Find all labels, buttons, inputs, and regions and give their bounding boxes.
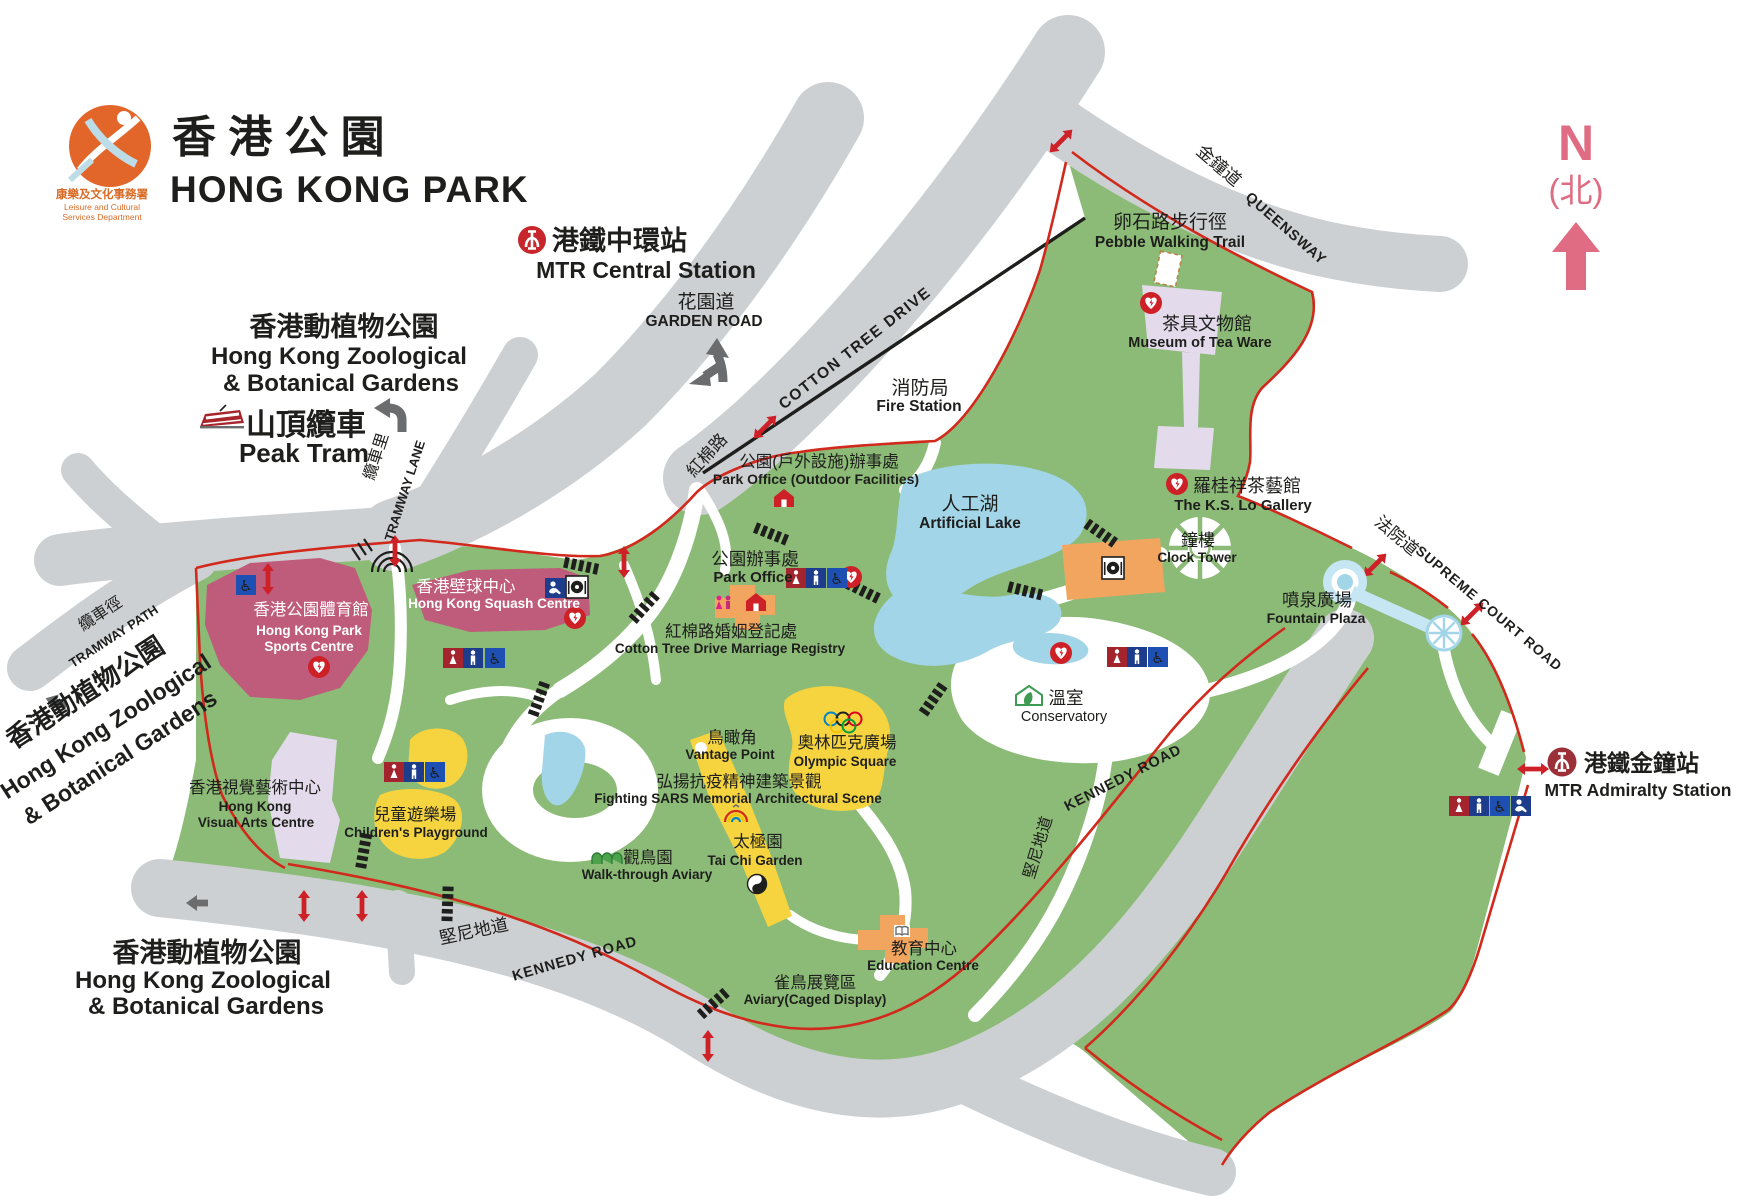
accessible-icon-glyph: ♿ <box>488 651 501 668</box>
aed-icon <box>1050 642 1072 664</box>
clock-tower-en: Clock Tower <box>1157 550 1237 565</box>
garden-road-zh: 花園道 <box>677 291 734 313</box>
visual-arts-en2: Visual Arts Centre <box>198 815 315 830</box>
tea-ware-zh: 茶具文物館 <box>1162 314 1252 334</box>
pebble-trail-zh: 卵石路步行徑 <box>1113 211 1227 233</box>
baby-care-icon <box>1511 796 1531 816</box>
artificial-lake-en: Artificial Lake <box>919 515 1021 532</box>
accessible-icon-glyph: ♿ <box>830 571 843 588</box>
sports-centre-zh: 香港公園體育館 <box>253 600 369 619</box>
mtr-admiralty-en: MTR Admiralty Station <box>1545 780 1732 800</box>
logo-dept-en1: Leisure and Cultural <box>64 202 140 212</box>
park-office-outdoor-en: Park Office (Outdoor Facilities) <box>713 471 919 487</box>
visual-arts-centre-building <box>268 732 340 863</box>
accessible-icon-glyph: ♿ <box>1493 799 1506 816</box>
marriage-registry-en: Cotton Tree Drive Marriage Registry <box>615 641 846 656</box>
fountain-wheel-icon <box>1427 616 1461 650</box>
aviary-caged-zh: 雀鳥展覽區 <box>774 973 857 992</box>
marriage-registry-zh: 紅棉路婚姻登記處 <box>665 622 797 641</box>
conservatory-zh: 溫室 <box>1049 688 1084 708</box>
education-centre-zh: 教育中心 <box>891 939 957 958</box>
yin-yang-icon <box>748 875 767 894</box>
sars-memorial-en: Fighting SARS Memorial Architectural Sce… <box>594 791 882 806</box>
mtr-central-zh: 港鐵中環站 <box>552 226 687 256</box>
accessible-icon-glyph: ♿ <box>428 765 441 782</box>
clock-tower-zh: 鐘樓 <box>1181 531 1215 550</box>
park-office-zh: 公園辦事處 <box>711 549 799 569</box>
baby-care-icon <box>545 578 565 598</box>
mtr-admiralty-icon <box>1548 748 1577 777</box>
zoo-bottom-zh: 香港動植物公園 <box>113 937 302 968</box>
visual-arts-en1: Hong Kong <box>219 799 292 814</box>
vantage-point-zh: 鳥瞰角 <box>707 728 757 747</box>
tai-chi-zh: 太極園 <box>733 832 783 851</box>
sars-memorial-zh: 弘揚抗疫精神建築景觀 <box>657 772 822 791</box>
zoo-top-en1: Hong Kong Zoological <box>211 343 467 370</box>
logo-dept-en2: Services Department <box>62 212 142 222</box>
compass-n: N <box>1558 115 1594 171</box>
playground-en: Children's Playground <box>344 825 487 840</box>
ks-lo-en: The K.S. Lo Gallery <box>1174 497 1312 514</box>
vantage-point-en: Vantage Point <box>685 747 775 762</box>
aed-icon <box>308 656 330 678</box>
park-office-outdoor-zh: 公園(戶外設施)辦事處 <box>739 452 899 471</box>
fire-station-en: Fire Station <box>876 398 961 415</box>
logo-dept-zh: 康樂及文化事務署 <box>56 187 148 201</box>
toilets-icon <box>443 648 483 668</box>
squash-centre-en: Hong Kong Squash Centre <box>408 596 580 611</box>
restaurant-icon <box>1102 557 1124 579</box>
toilets-icon <box>1449 796 1489 816</box>
compass-north-zh: (北) <box>1549 172 1604 209</box>
zoo-bottom-en2: & Botanical Gardens <box>88 993 324 1020</box>
zoo-top-en2: & Botanical Gardens <box>223 370 459 397</box>
toilets-icon <box>384 762 424 782</box>
artificial-lake-zh: 人工湖 <box>941 493 998 515</box>
park-office-en: Park Office <box>713 569 792 586</box>
pebble-trail-en: Pebble Walking Trail <box>1095 234 1245 251</box>
mtr-central-en: MTR Central Station <box>536 257 756 283</box>
accessible-icon-glyph: ♿ <box>1151 650 1164 667</box>
squash-centre-zh: 香港壁球中心 <box>417 577 516 596</box>
olympic-square-en: Olympic Square <box>794 754 897 769</box>
mtr-central-icon <box>518 226 546 254</box>
lcsd-logo <box>69 105 151 187</box>
restaurant-icon <box>566 576 588 598</box>
visual-arts-zh: 香港視覺藝術中心 <box>189 778 321 797</box>
ks-lo-zh: 羅桂祥茶藝館 <box>1193 476 1301 496</box>
aed-icon <box>1140 292 1162 314</box>
zoo-top-zh: 香港動植物公園 <box>250 311 439 342</box>
accessible-icon-glyph: ♿ <box>239 578 252 595</box>
tea-ware-en: Museum of Tea Ware <box>1128 335 1271 351</box>
sports-centre-en1: Hong Kong Park <box>256 623 362 638</box>
hong-kong-park-map: ♿ ♿ ♿ ♿ ♿ ♿ 康樂及文化事務署 Leisure and Cultura… <box>0 0 1744 1202</box>
playground-zh: 兒童遊樂場 <box>374 805 457 824</box>
education-centre-en: Education Centre <box>867 958 979 973</box>
mtr-admiralty-zh: 港鐵金鐘站 <box>1584 750 1699 776</box>
aviary-walk-en: Walk-through Aviary <box>582 867 713 882</box>
fountain-plaza-en: Fountain Plaza <box>1267 610 1366 626</box>
sports-centre-en2: Sports Centre <box>264 639 354 654</box>
fountain-plaza-zh: 噴泉廣場 <box>1282 590 1352 610</box>
fire-station-zh: 消防局 <box>891 377 948 399</box>
garden-road-en: GARDEN ROAD <box>645 313 762 330</box>
zoo-bottom-en1: Hong Kong Zoological <box>75 967 331 994</box>
page-title-zh: 香 港 公 園 <box>172 113 385 162</box>
conservatory-en: Conservatory <box>1021 709 1108 725</box>
olympic-square-zh: 奧林匹克廣場 <box>798 733 897 752</box>
book-icon <box>894 925 910 937</box>
aviary-caged-en: Aviary(Caged Display) <box>744 992 887 1007</box>
aed-icon <box>1166 473 1188 495</box>
page-title-en: HONG KONG PARK <box>170 169 529 210</box>
toilets-icon <box>1107 647 1147 667</box>
tai-chi-en: Tai Chi Garden <box>707 853 802 868</box>
road-stub <box>398 903 402 972</box>
peak-tram-en: Peak Tram <box>239 438 369 468</box>
aviary-walk-zh: 觀鳥園 <box>623 848 673 867</box>
peak-tram-zh: 山頂纜車 <box>246 408 366 442</box>
